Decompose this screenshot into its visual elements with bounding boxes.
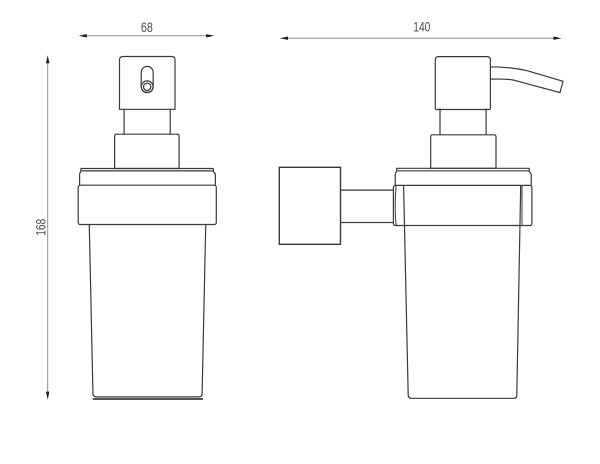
svg-text:168: 168: [33, 219, 48, 236]
svg-text:68: 68: [141, 20, 153, 35]
svg-text:140: 140: [413, 19, 430, 34]
